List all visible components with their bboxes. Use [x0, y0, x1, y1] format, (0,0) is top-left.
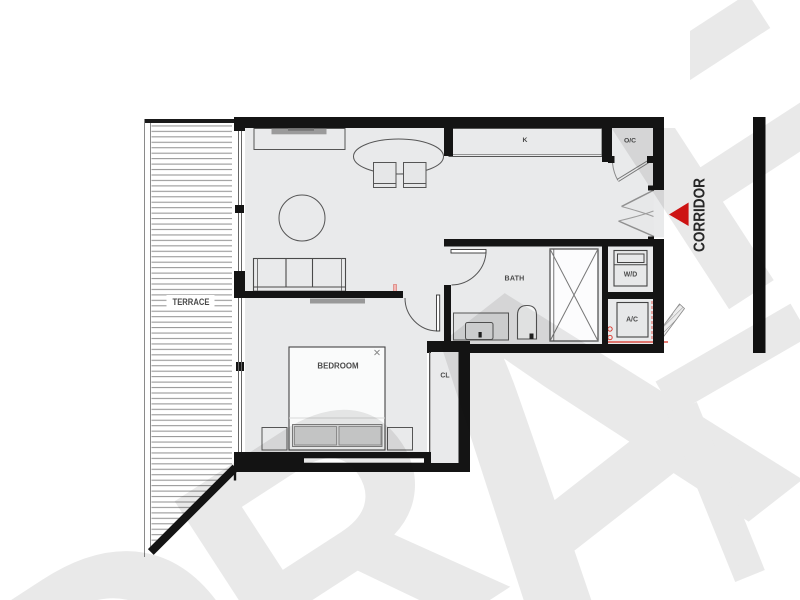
svg-text:TERRACE: TERRACE	[173, 296, 210, 307]
